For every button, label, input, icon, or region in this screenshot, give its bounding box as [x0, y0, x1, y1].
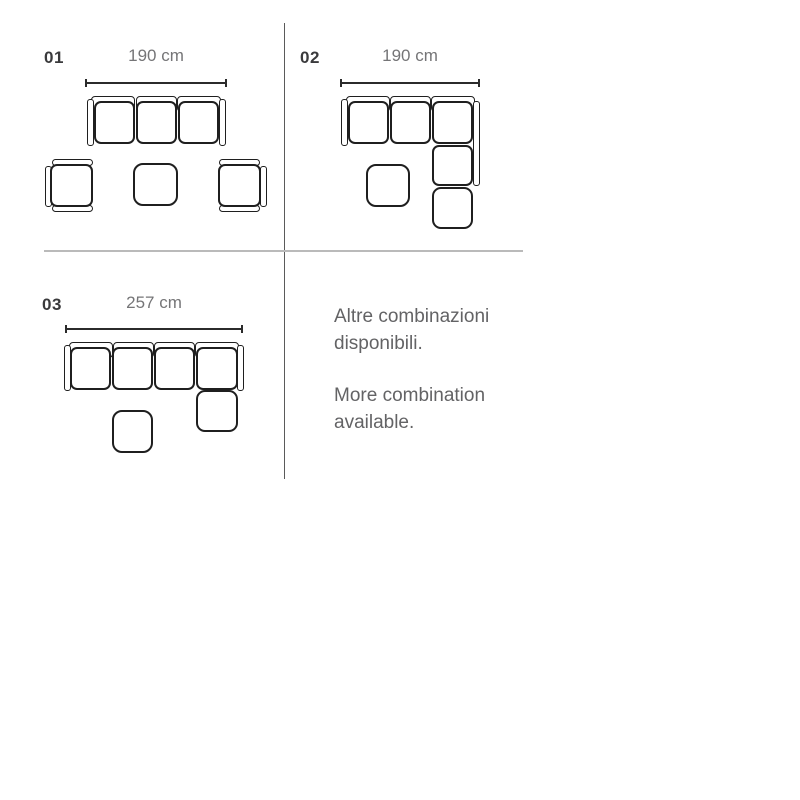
dimension-line: [340, 79, 480, 87]
pouf: [112, 410, 153, 453]
config-03-number: 03: [42, 296, 62, 313]
dimension-line: [65, 325, 243, 333]
chaise-seat: [196, 390, 238, 432]
dimension-tick-right: [241, 325, 243, 333]
sofa-seat: [390, 101, 431, 144]
config-01-panel: 01 190 cm: [0, 0, 285, 251]
sofa-seat: [196, 347, 238, 390]
sofa-seat: [70, 347, 111, 390]
note-italian: Altre combinazioni disponibili.: [334, 304, 519, 357]
armchair-backrest: [260, 166, 267, 207]
config-02-number: 02: [300, 49, 320, 66]
terminal-seat: [432, 187, 473, 229]
note-panel: Altre combinazioni disponibili. More com…: [285, 251, 525, 480]
note-english: More combination available.: [334, 383, 519, 436]
pouf: [133, 163, 178, 206]
config-01-number: 01: [44, 49, 64, 66]
pouf: [366, 164, 410, 207]
sofa-seat: [112, 347, 153, 390]
armrest-right: [237, 345, 244, 391]
availability-note: Altre combinazioni disponibili. More com…: [334, 304, 519, 462]
backrest-bar-right: [473, 101, 480, 186]
config-03-panel: 03 257 cm: [0, 251, 285, 480]
armrest-right: [219, 99, 226, 146]
dimension-rule: [85, 82, 227, 84]
sofa-seat: [432, 145, 473, 186]
sofa-seat: [154, 347, 195, 390]
dimension-rule: [65, 328, 243, 330]
armchair-seat: [50, 164, 93, 207]
sofa-seat: [178, 101, 219, 144]
config-03-dimension: 257 cm: [65, 293, 243, 313]
config-01-dimension: 190 cm: [85, 46, 227, 66]
sofa-seat: [348, 101, 389, 144]
corner-seat: [432, 101, 473, 144]
sofa-seat: [136, 101, 177, 144]
sofa-seat: [94, 101, 135, 144]
armrest-left: [341, 99, 348, 146]
armrest-left: [87, 99, 94, 146]
diagram-canvas: 01 190 cm 02 190 cm: [0, 0, 800, 800]
armchair-seat: [218, 164, 261, 207]
dimension-tick-right: [225, 79, 227, 87]
dimension-tick-right: [478, 79, 480, 87]
config-02-dimension: 190 cm: [340, 46, 480, 66]
dimension-line: [85, 79, 227, 87]
dimension-rule: [340, 82, 480, 84]
config-02-panel: 02 190 cm: [285, 0, 523, 251]
